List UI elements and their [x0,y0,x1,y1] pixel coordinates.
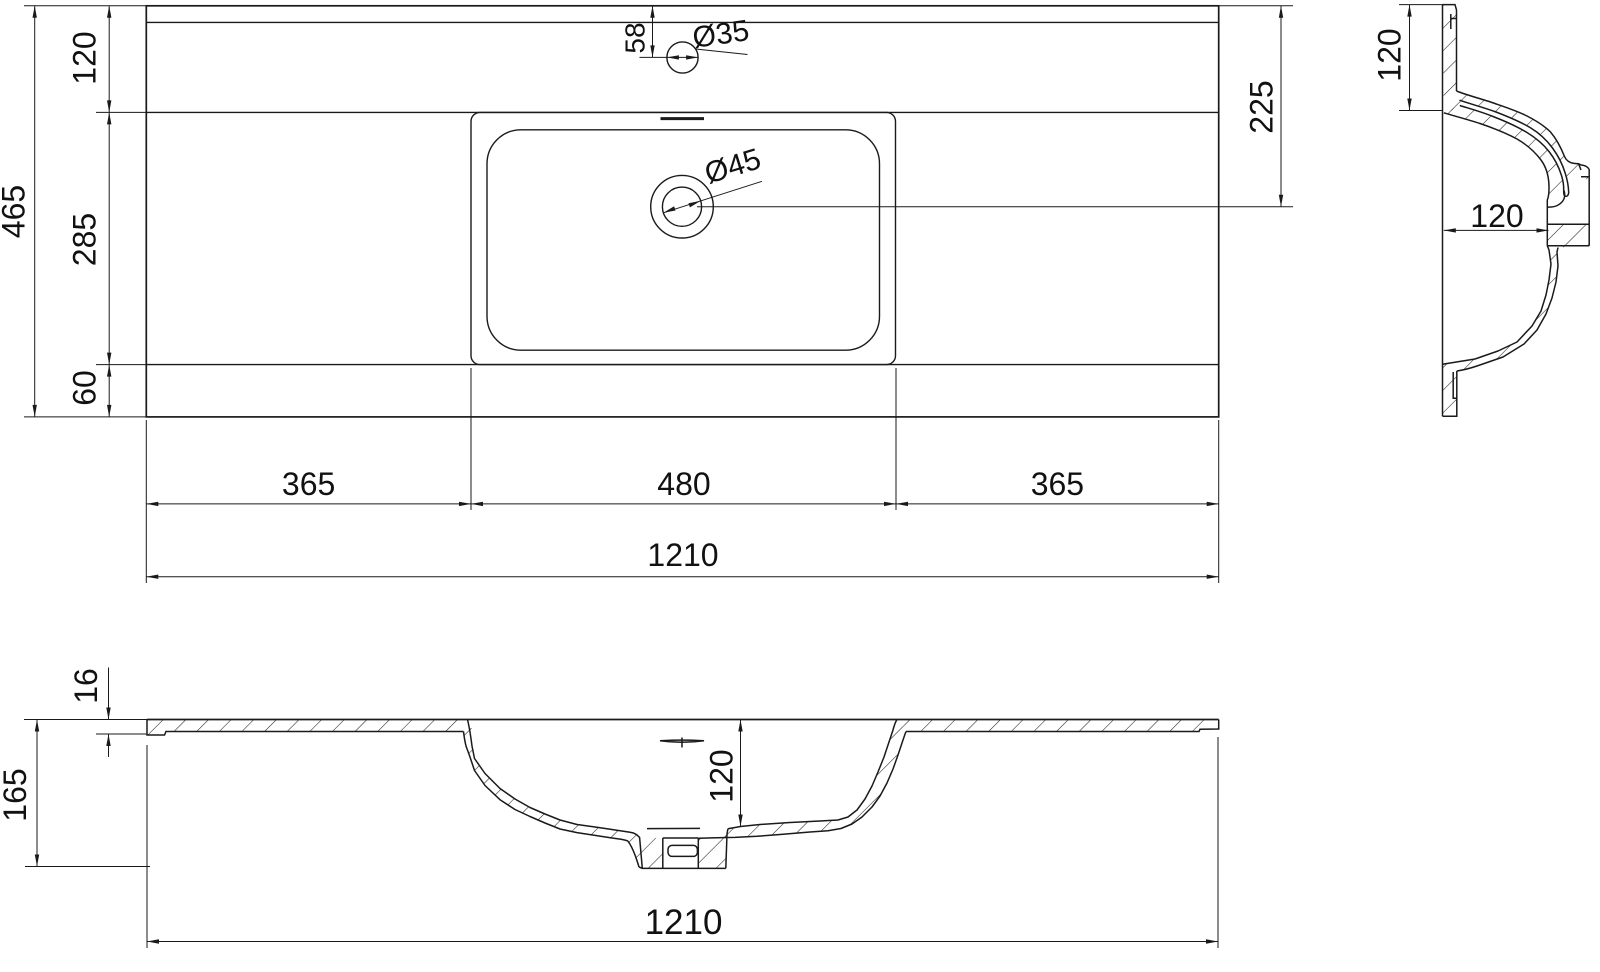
svg-text:165: 165 [0,768,33,821]
svg-text:120: 120 [1470,198,1523,234]
svg-text:60: 60 [66,370,102,406]
svg-text:480: 480 [657,466,710,502]
svg-text:16: 16 [68,668,104,704]
svg-text:365: 365 [282,466,335,502]
svg-text:465: 465 [0,185,31,238]
svg-text:58: 58 [619,22,650,53]
svg-text:285: 285 [66,213,102,266]
svg-text:1210: 1210 [645,903,723,942]
svg-text:365: 365 [1031,466,1084,502]
svg-text:120: 120 [66,31,102,84]
svg-text:1210: 1210 [647,537,718,573]
svg-text:120: 120 [1371,28,1407,81]
svg-text:225: 225 [1243,80,1279,133]
svg-text:120: 120 [703,749,739,802]
